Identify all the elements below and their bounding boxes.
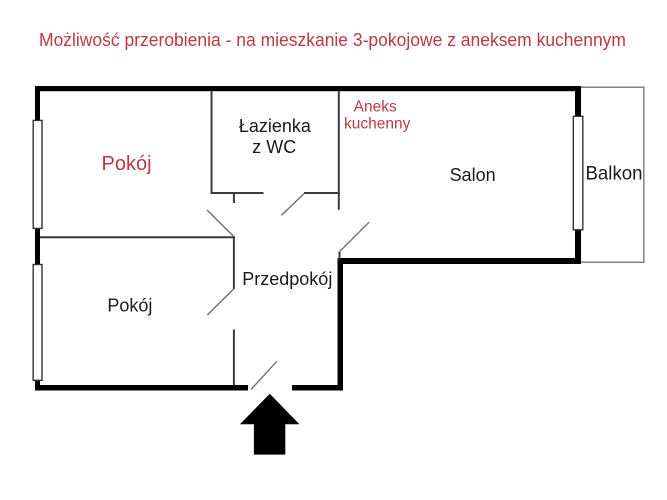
svg-text:Możliwość przerobienia - na mi: Możliwość przerobienia - na mieszkanie 3… [39, 30, 626, 50]
svg-text:kuchenny: kuchenny [344, 116, 411, 133]
svg-text:Balkon: Balkon [586, 163, 643, 185]
svg-text:Aneks: Aneks [354, 99, 397, 116]
svg-text:Pokój: Pokój [107, 296, 152, 316]
svg-text:Salon: Salon [450, 165, 496, 185]
svg-text:Łazienka: Łazienka [239, 116, 312, 136]
svg-text:Przedpokój: Przedpokój [242, 269, 332, 289]
svg-text:Pokój: Pokój [102, 153, 152, 175]
svg-text:z WC: z WC [252, 137, 296, 157]
